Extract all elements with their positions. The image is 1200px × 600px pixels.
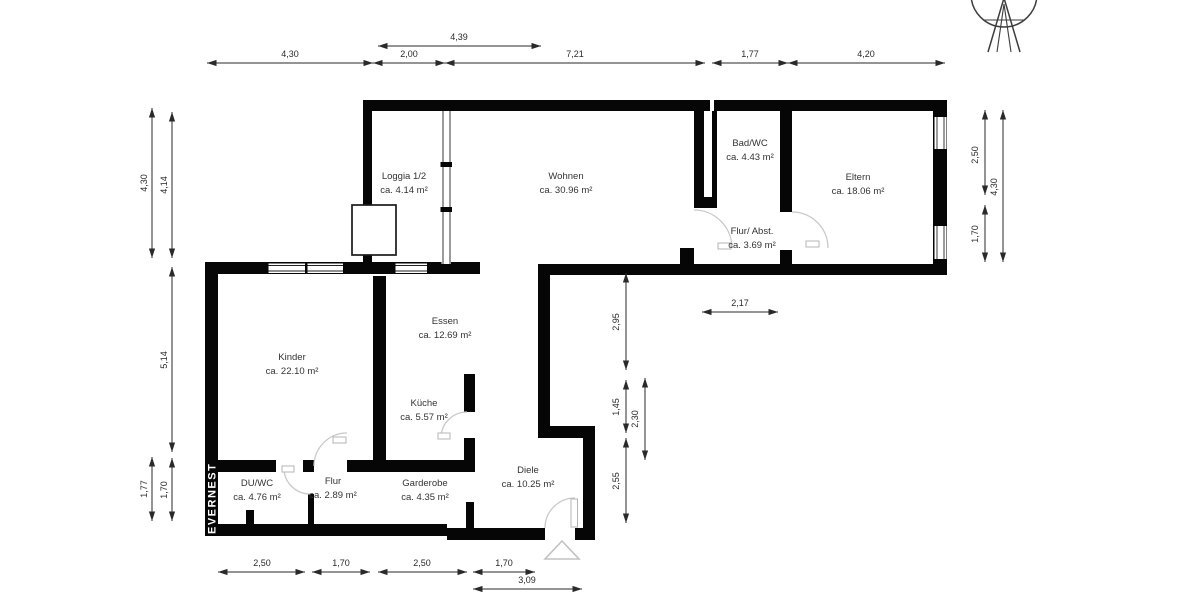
room-area-flur: ca. 2.89 m²: [309, 490, 357, 501]
dimension-label: 2,17: [731, 298, 749, 308]
room-name-bad-wc: Bad/WC: [732, 138, 768, 149]
door-leaf: [333, 437, 346, 443]
room-area-eltern: ca. 18.06 m²: [832, 186, 885, 197]
dimension-label: 2,50: [970, 146, 980, 164]
eltern-window-top: [934, 115, 948, 152]
door-leaf: [806, 241, 819, 247]
eltern-window-bottom: [934, 224, 948, 262]
floor-plan-svg: EVERNEST Loggia 1/2ca. 4.14 m²Wohnenca. …: [0, 0, 1200, 600]
dimension-label: 2,50: [253, 558, 271, 568]
dimension-label: 1,70: [495, 558, 513, 568]
room-area-wohnen: ca. 30.96 m²: [540, 185, 593, 196]
room-name-loggia: Loggia 1/2: [382, 171, 426, 182]
door-arc-wohnen-flur: [694, 210, 732, 248]
walls: [205, 100, 947, 540]
room-name-essen: Essen: [432, 316, 458, 327]
dimension-label: 4,30: [139, 174, 149, 192]
room-name-garderobe: Garderobe: [402, 478, 447, 489]
room-name-kueche: Küche: [411, 398, 438, 409]
kinder-window-right: [305, 263, 346, 274]
room-name-diele: Diele: [517, 465, 539, 476]
kinder-window-left: [266, 263, 305, 274]
door-leaf: [571, 499, 578, 527]
room-name-eltern: Eltern: [846, 172, 871, 183]
dimension-label: 4,30: [281, 49, 299, 59]
dimension-label: 2,00: [400, 49, 418, 59]
dimension-label: 3,09: [518, 575, 536, 585]
room-area-du-wc: ca. 4.76 m²: [233, 492, 281, 503]
dimension-label: 1,45: [611, 398, 621, 416]
loggia-fixture-box: [352, 205, 396, 255]
loggia-window: [441, 111, 453, 264]
entrance-marker: [545, 541, 579, 559]
dimension-label: 4,39: [450, 32, 468, 42]
room-area-flur-abst: ca. 3.69 m²: [728, 240, 776, 251]
dimension-label: 4,30: [989, 178, 999, 196]
room-area-diele: ca. 10.25 m²: [502, 479, 555, 490]
room-area-bad-wc: ca. 4.43 m²: [726, 152, 774, 163]
dimension-label: 2,30: [630, 410, 640, 428]
wall-expansion-joint: [710, 100, 714, 111]
loggia-bottom-window: [393, 263, 430, 274]
room-area-loggia: ca. 4.14 m²: [380, 185, 428, 196]
dimension-label: 4,14: [159, 176, 169, 194]
door-leaf: [438, 433, 450, 439]
evernest-compass-logo-icon: [971, 0, 1037, 52]
floor-plan-page: EVERNEST Loggia 1/2ca. 4.14 m²Wohnenca. …: [0, 0, 1200, 600]
brand-name: EVERNEST: [207, 463, 219, 534]
room-name-wohnen: Wohnen: [548, 171, 583, 182]
room-area-garderobe: ca. 4.35 m²: [401, 492, 449, 503]
dimension-label: 2,50: [413, 558, 431, 568]
dimension-label: 5,14: [159, 351, 169, 369]
dimension-label: 2,55: [611, 472, 621, 490]
dimension-label: 1,70: [159, 481, 169, 499]
dimension-label: 2,95: [611, 313, 621, 331]
dimension-label: 1,77: [139, 480, 149, 498]
room-area-kueche: ca. 5.57 m²: [400, 412, 448, 423]
room-name-du-wc: DU/WC: [241, 478, 273, 489]
dimension-label: 1,70: [970, 225, 980, 243]
dimension-label: 1,77: [741, 49, 759, 59]
dimension-label: 1,70: [332, 558, 350, 568]
room-area-kinder: ca. 22.10 m²: [266, 366, 319, 377]
room-name-flur-abst: Flur/ Abst.: [731, 226, 774, 237]
dimension-label: 4,20: [857, 49, 875, 59]
room-name-kinder: Kinder: [278, 352, 305, 363]
dimension-label: 7,21: [566, 49, 584, 59]
room-name-flur: Flur: [325, 476, 341, 487]
room-area-essen: ca. 12.69 m²: [419, 330, 472, 341]
door-leaf: [282, 466, 294, 472]
